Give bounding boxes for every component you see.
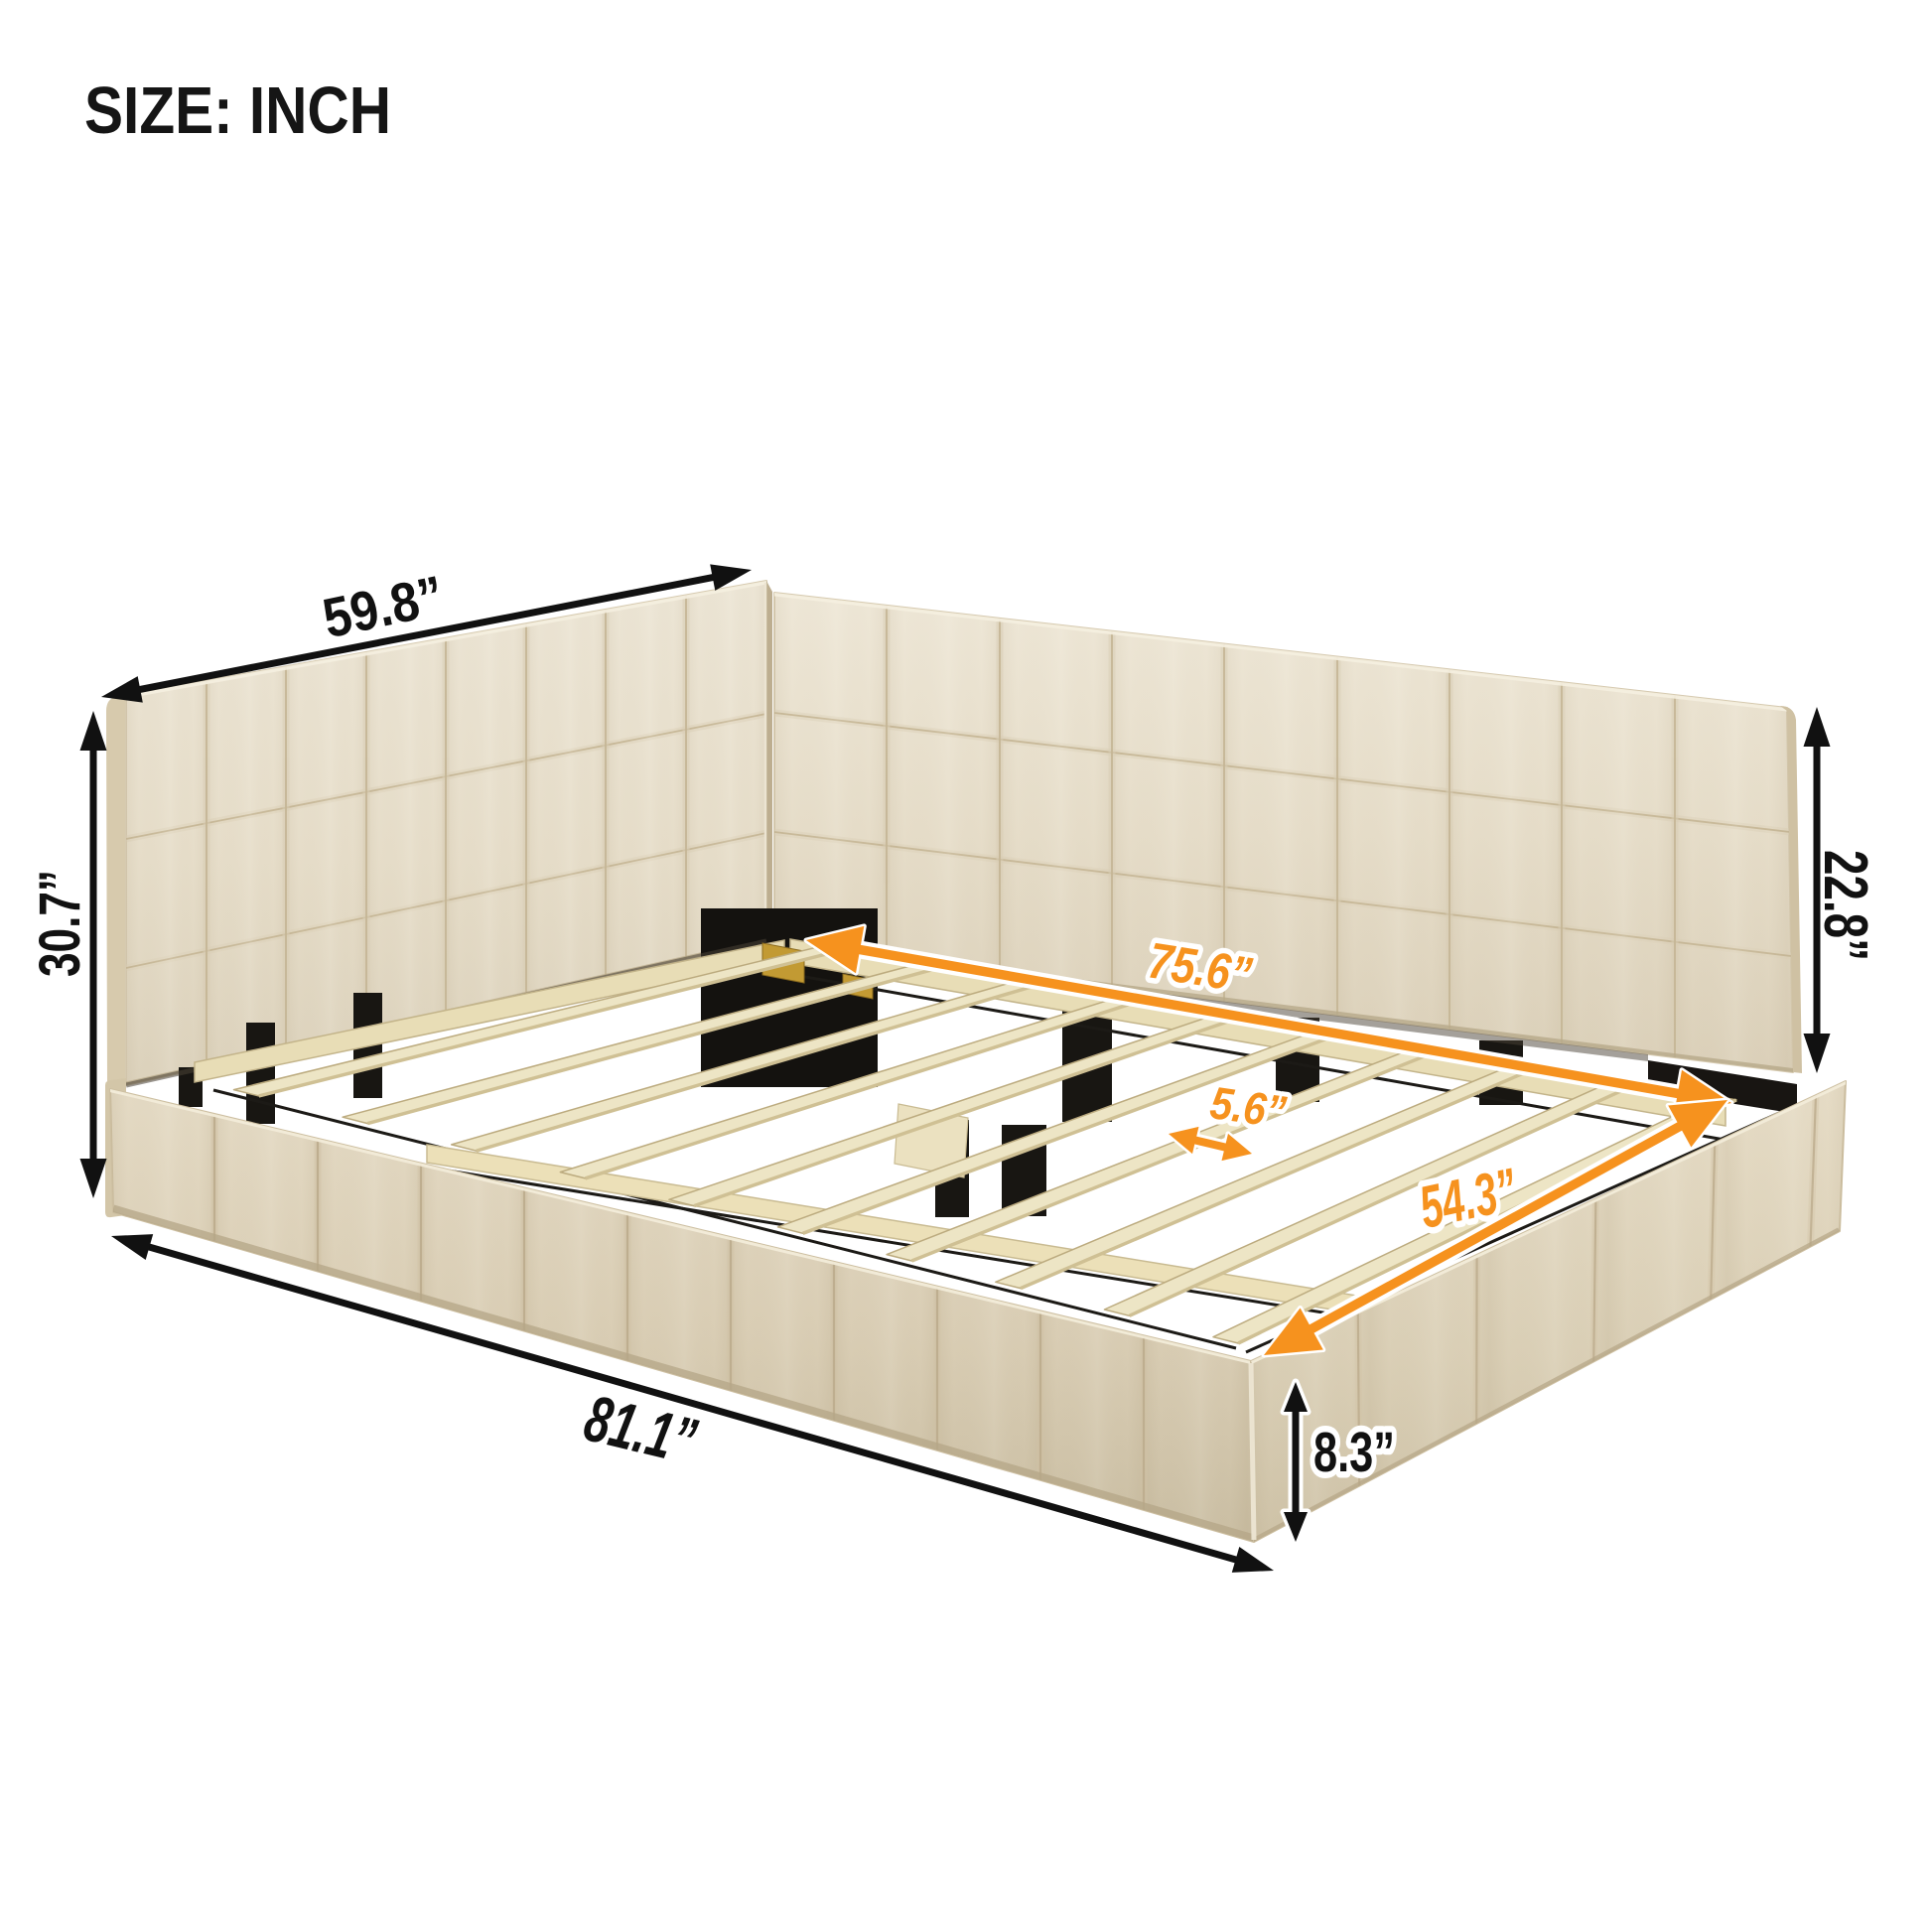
svg-text:5.6”: 5.6” [1207, 1076, 1289, 1138]
svg-text:8.3”: 8.3” [1313, 1421, 1395, 1484]
svg-text:30.7”: 30.7” [28, 870, 92, 977]
svg-text:SIZE: INCH: SIZE: INCH [84, 73, 391, 148]
svg-text:22.8”: 22.8” [1811, 850, 1879, 961]
